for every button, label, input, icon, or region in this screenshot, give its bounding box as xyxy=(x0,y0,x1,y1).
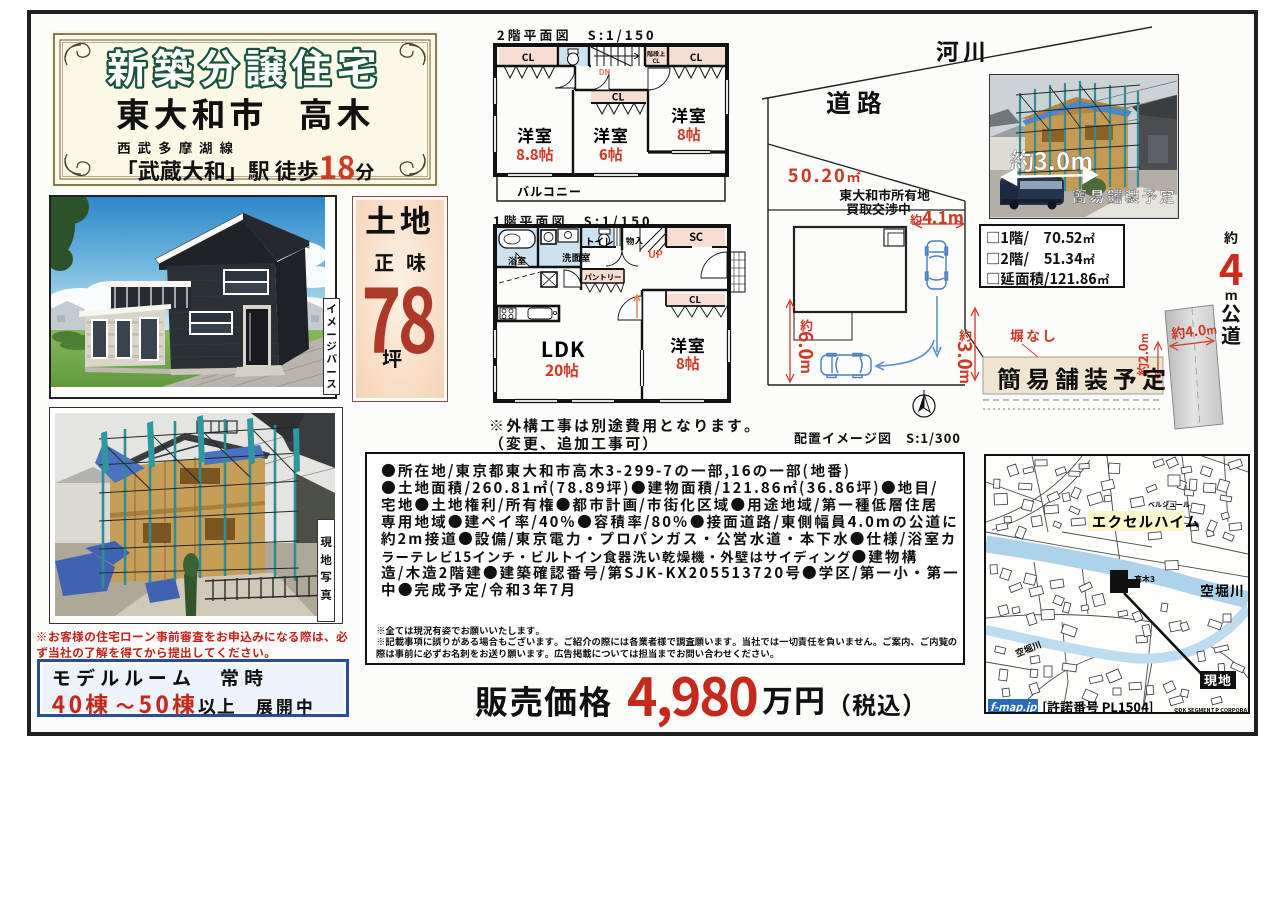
svg-text:8帖: 8帖 xyxy=(676,353,700,374)
svg-text:空堀川: 空堀川 xyxy=(1200,581,1245,601)
svg-text:[許諾番号 PL1504]: [許諾番号 PL1504] xyxy=(1042,697,1154,712)
svg-text:約3.0m: 約3.0m xyxy=(1010,142,1093,177)
svg-text:パントリー: パントリー xyxy=(584,272,622,283)
svg-text:バルコニー: バルコニー xyxy=(517,183,582,200)
svg-text:DN: DN xyxy=(599,67,611,78)
svg-text:物入: 物入 xyxy=(626,235,644,247)
svg-text:エクセルハイム: エクセルハイム xyxy=(1092,511,1201,532)
svg-text:洗面室: 洗面室 xyxy=(562,250,591,264)
svg-text:簡易舗装予定: 簡易舗装予定 xyxy=(1072,186,1177,207)
svg-text:20帖: 20帖 xyxy=(545,359,579,381)
svg-text:8.8帖: 8.8帖 xyxy=(516,144,554,165)
svg-text:©DK SEGMENT P CORPORATION: ©DK SEGMENT P CORPORATION xyxy=(1174,706,1248,712)
svg-text:浴室: 浴室 xyxy=(508,254,526,267)
svg-text:CL: CL xyxy=(612,89,625,104)
svg-text:塀なし: 塀なし xyxy=(1010,326,1058,346)
svg-text:CL: CL xyxy=(689,292,701,306)
svg-text:簡易舗装予定: 簡易舗装予定 xyxy=(997,360,1171,395)
svg-text:トイレ: トイレ xyxy=(585,234,614,248)
svg-text:現地: 現地 xyxy=(1204,670,1232,689)
svg-text:高木3: 高木3 xyxy=(1134,574,1155,585)
svg-text:f-map.jp: f-map.jp xyxy=(990,699,1037,712)
svg-text:CL: CL xyxy=(690,49,703,64)
svg-text:新築分譲住宅: 新築分譲住宅 xyxy=(107,39,383,95)
svg-text:CL: CL xyxy=(652,56,659,65)
svg-text:UP: UP xyxy=(648,247,663,262)
svg-text:ベルジュール: ベルジュール xyxy=(1148,500,1191,510)
svg-text:SC: SC xyxy=(689,229,704,245)
svg-text:8帖: 8帖 xyxy=(677,124,701,145)
svg-text:6帖: 6帖 xyxy=(599,144,623,165)
svg-text:CL: CL xyxy=(522,49,535,64)
